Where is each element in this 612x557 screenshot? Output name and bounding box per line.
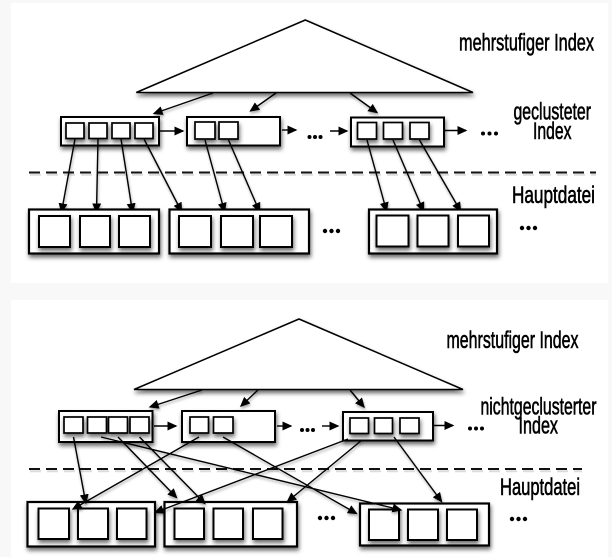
svg-text:Index: Index — [533, 118, 572, 145]
svg-text:mehrstufiger Index: mehrstufiger Index — [459, 30, 594, 57]
svg-text:Index: Index — [519, 412, 559, 439]
svg-text:Hauptdatei: Hauptdatei — [512, 182, 595, 209]
svg-text:mehrstufiger Index: mehrstufiger Index — [447, 327, 579, 354]
svg-text:Hauptdatei: Hauptdatei — [500, 474, 580, 501]
